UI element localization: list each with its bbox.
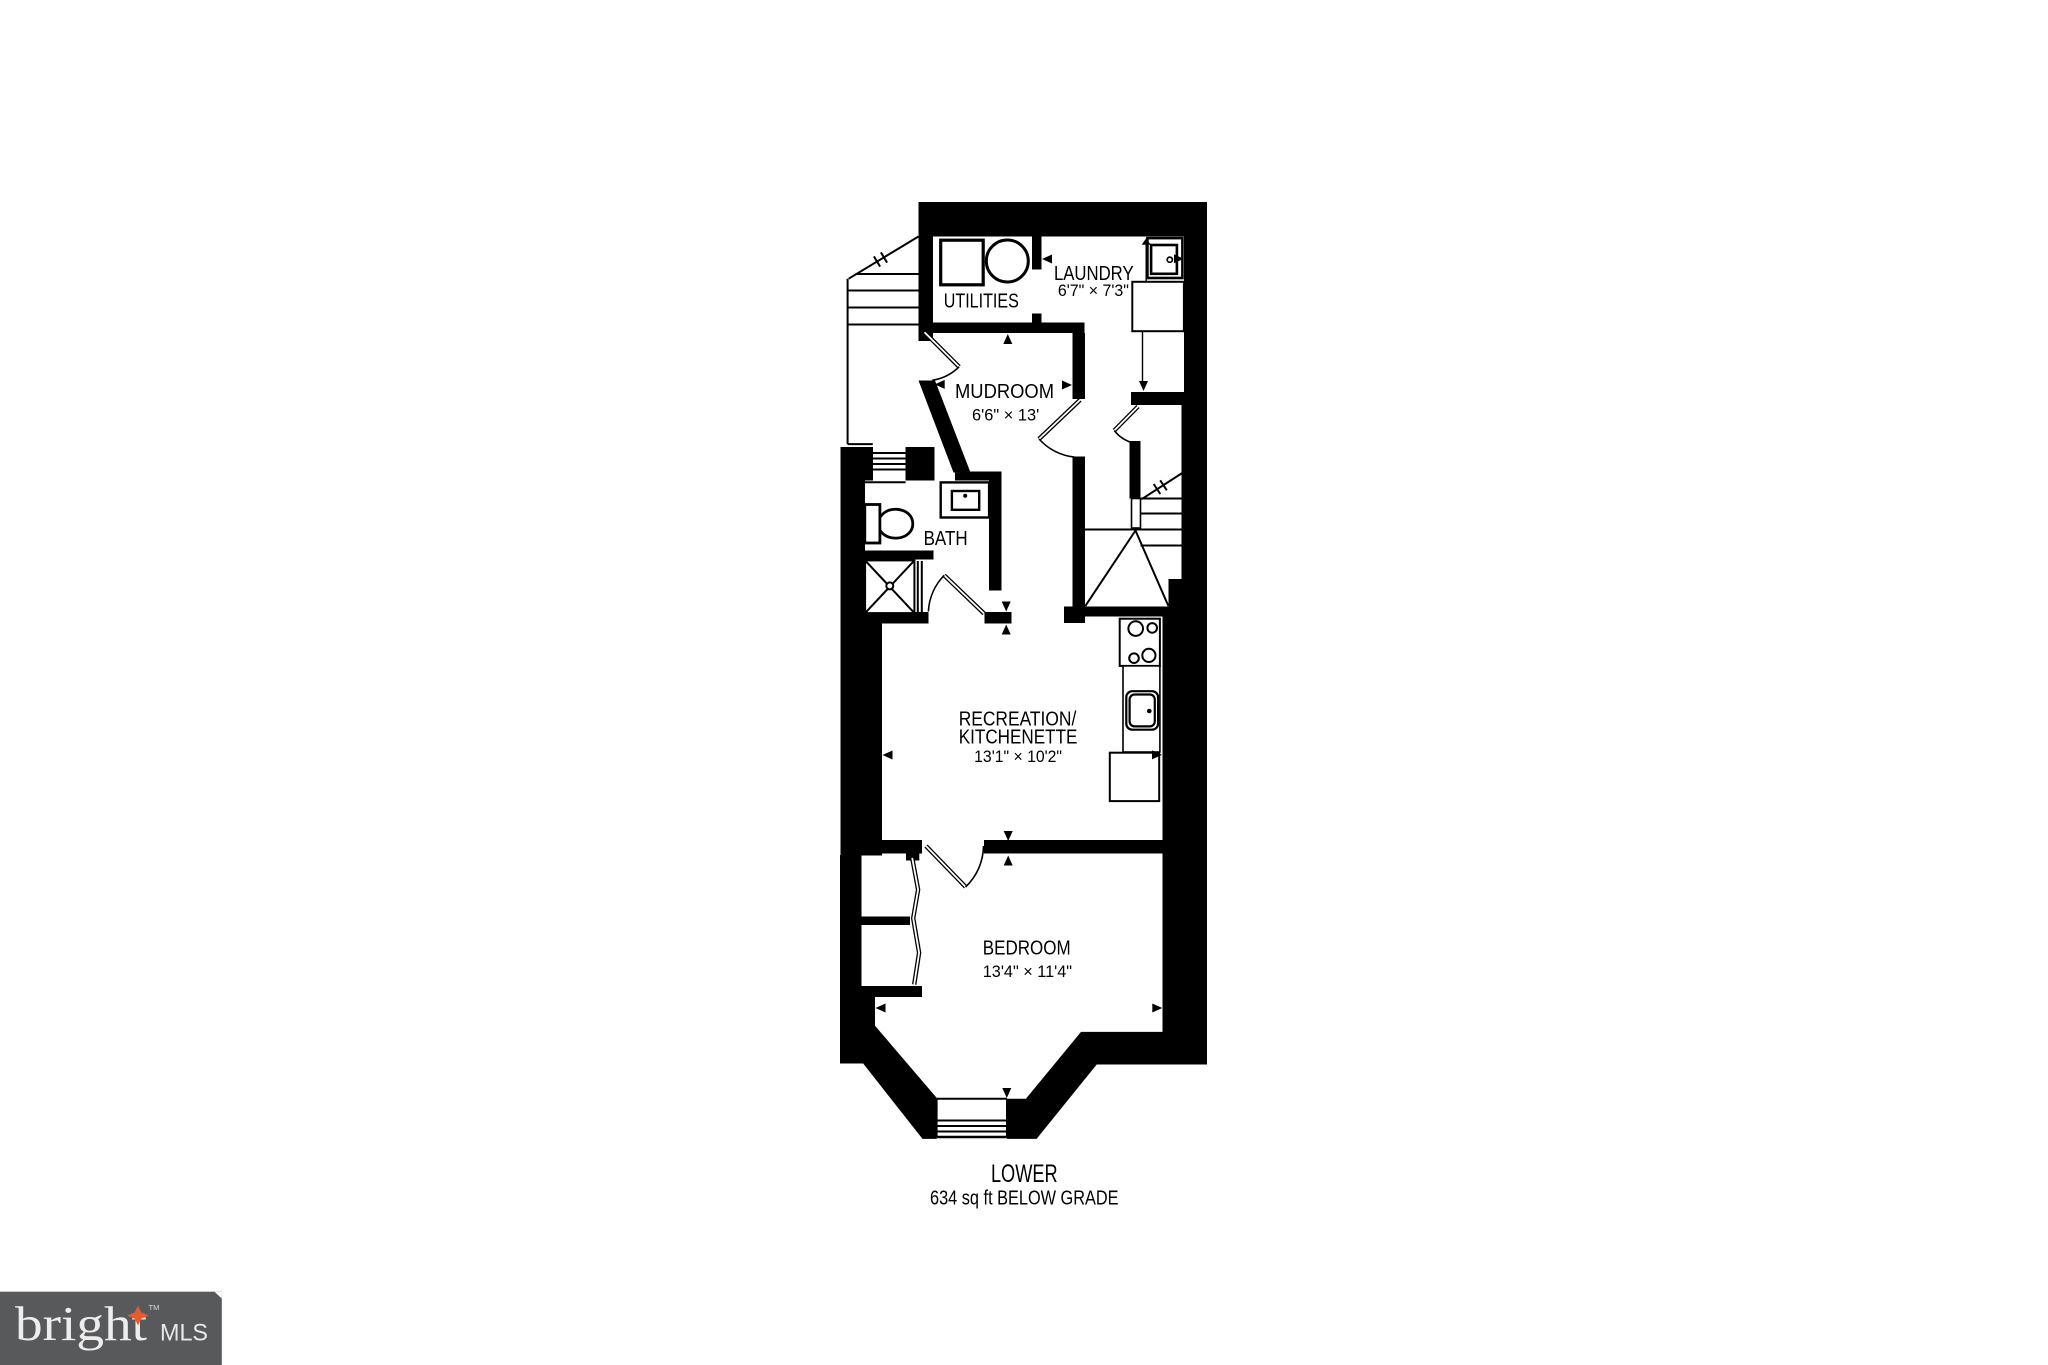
svg-text:TM: TM — [149, 1303, 160, 1312]
svg-text:6'7" × 7'3": 6'7" × 7'3" — [1058, 281, 1129, 300]
svg-text:UTILITIES: UTILITIES — [944, 290, 1019, 312]
svg-text:634 sq ft BELOW GRADE: 634 sq ft BELOW GRADE — [930, 1187, 1119, 1209]
svg-text:KITCHENETTE: KITCHENETTE — [959, 726, 1078, 748]
svg-text:MUDROOM: MUDROOM — [955, 381, 1054, 403]
svg-text:bright: bright — [15, 1296, 147, 1351]
svg-text:BATH: BATH — [924, 528, 968, 550]
svg-text:6'6" × 13': 6'6" × 13' — [972, 405, 1039, 424]
svg-text:MLS: MLS — [160, 1320, 208, 1347]
svg-text:13'4" × 11'4": 13'4" × 11'4" — [983, 962, 1072, 981]
svg-text:13'1" × 10'2": 13'1" × 10'2" — [974, 747, 1062, 766]
svg-text:BEDROOM: BEDROOM — [983, 937, 1071, 959]
svg-text:LOWER: LOWER — [991, 1160, 1058, 1188]
